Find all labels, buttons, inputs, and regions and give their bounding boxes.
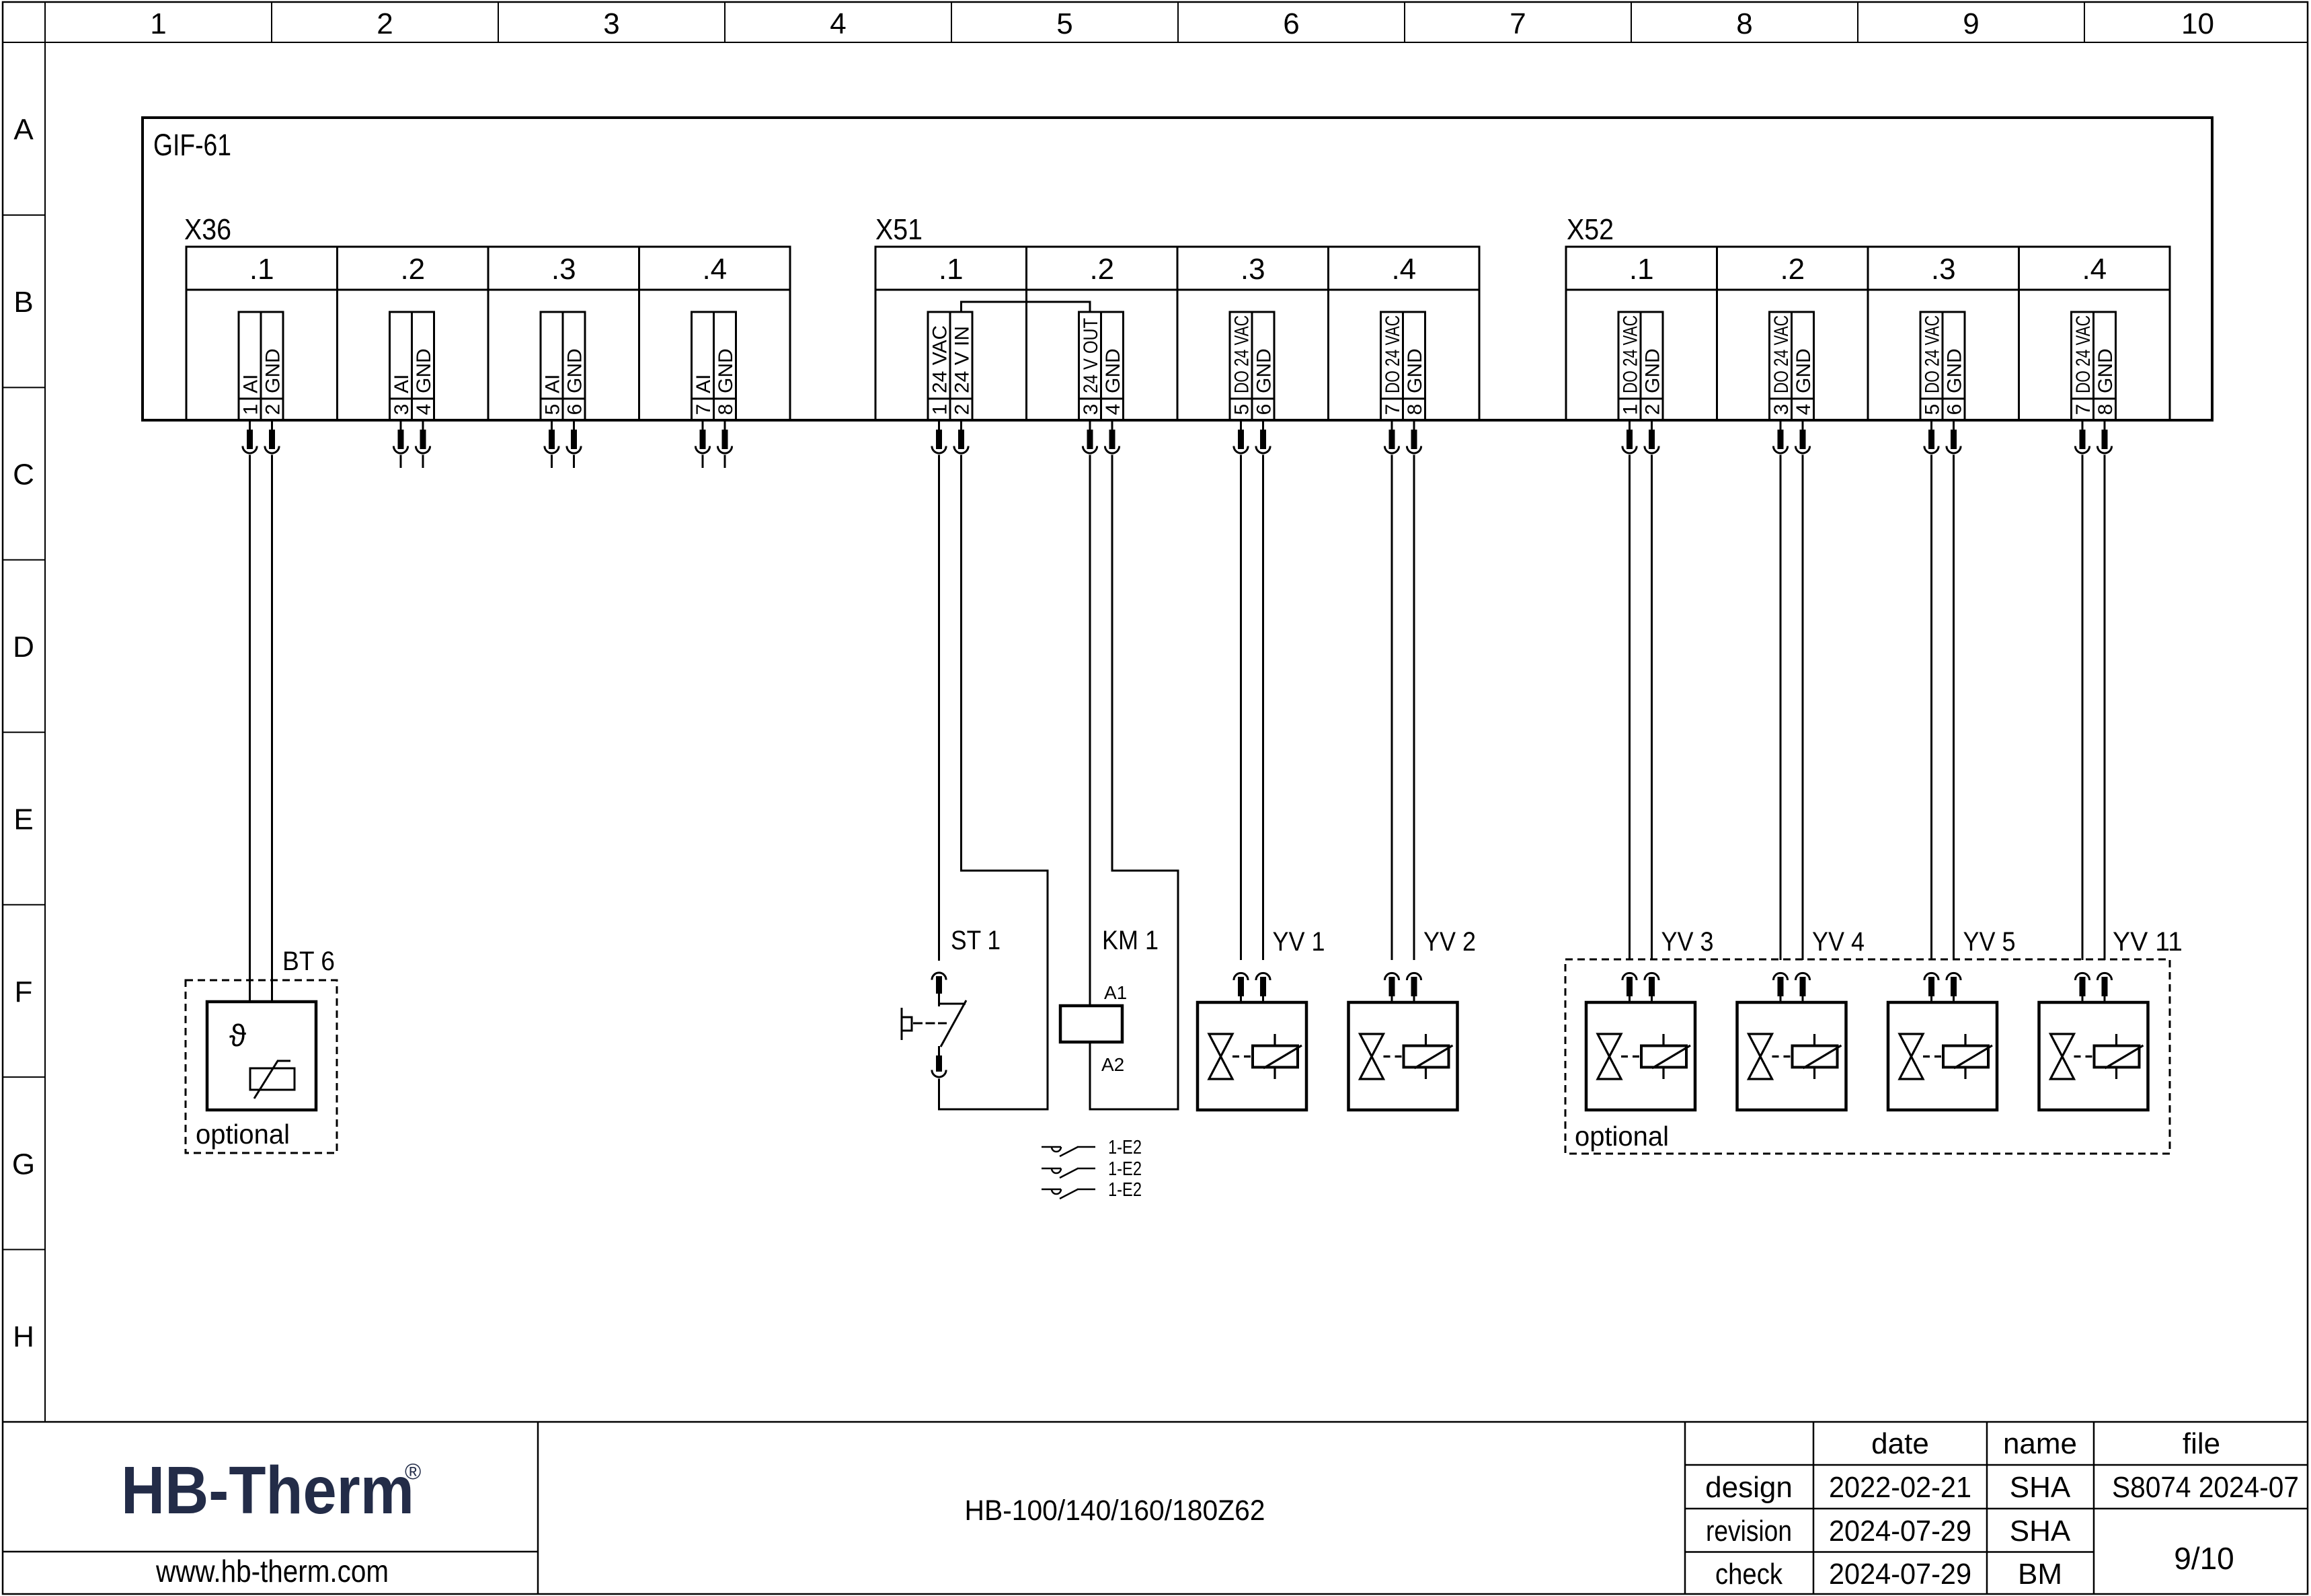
svg-text:GND: GND: [564, 348, 586, 393]
svg-text:H: H: [13, 1320, 34, 1353]
svg-text:date: date: [1871, 1427, 1929, 1460]
svg-text:2024-07-29: 2024-07-29: [1829, 1558, 1971, 1591]
svg-text:E: E: [13, 803, 33, 836]
svg-text:YV 5: YV 5: [1963, 927, 2016, 957]
svg-text:X36: X36: [184, 213, 231, 246]
svg-text:.3: .3: [1931, 253, 1956, 286]
svg-text:D: D: [13, 631, 34, 664]
svg-text:GND: GND: [715, 348, 737, 393]
svg-text:file: file: [2183, 1427, 2220, 1460]
svg-text:®: ®: [405, 1459, 421, 1484]
svg-text:2024-07-29: 2024-07-29: [1829, 1515, 1971, 1548]
svg-text:2: 2: [377, 7, 393, 40]
svg-text:YV 11: YV 11: [2113, 927, 2183, 957]
svg-text:.4: .4: [1391, 253, 1416, 286]
svg-text:7: 7: [1382, 404, 1404, 415]
svg-text:5: 5: [1056, 7, 1072, 40]
svg-text:C: C: [13, 458, 34, 491]
svg-text:SHA: SHA: [2010, 1515, 2071, 1548]
svg-text:check: check: [1715, 1558, 1783, 1591]
svg-text:GND: GND: [1102, 348, 1124, 393]
svg-text:ϑ: ϑ: [229, 1018, 246, 1053]
svg-text:HB-100/140/160/180Z62: HB-100/140/160/180Z62: [965, 1494, 1265, 1527]
svg-text:DO 24 VAC: DO 24 VAC: [1620, 315, 1642, 393]
svg-text:GND: GND: [1793, 348, 1815, 393]
svg-text:4: 4: [413, 404, 435, 415]
svg-text:4: 4: [1793, 404, 1815, 415]
svg-text:24 VAC: 24 VAC: [929, 325, 951, 393]
svg-text:7: 7: [2072, 404, 2094, 415]
svg-text:1-E2: 1-E2: [1108, 1179, 1142, 1201]
svg-text:5: 5: [1231, 404, 1253, 415]
svg-text:3: 3: [1770, 404, 1793, 415]
svg-text:1: 1: [150, 7, 166, 40]
svg-text:AI: AI: [693, 374, 715, 393]
svg-text:1-E2: 1-E2: [1108, 1158, 1142, 1180]
svg-text:DO 24 VAC: DO 24 VAC: [1922, 315, 1944, 393]
svg-text:2: 2: [1642, 404, 1664, 415]
svg-text:3: 3: [391, 404, 413, 415]
svg-text:.2: .2: [1780, 253, 1805, 286]
svg-text:.2: .2: [400, 253, 425, 286]
svg-text:.1: .1: [939, 253, 964, 286]
svg-text:1-E2: 1-E2: [1108, 1137, 1142, 1158]
svg-text:GND: GND: [413, 348, 435, 393]
svg-text:AI: AI: [542, 374, 564, 393]
svg-text:www.hb-therm.com: www.hb-therm.com: [155, 1554, 389, 1589]
svg-text:5: 5: [1922, 404, 1944, 415]
svg-text:9/10: 9/10: [2174, 1541, 2234, 1576]
svg-text:YV 1: YV 1: [1273, 927, 1325, 957]
svg-text:X51: X51: [875, 213, 923, 246]
svg-text:8: 8: [1736, 7, 1752, 40]
svg-text:24 V OUT: 24 V OUT: [1080, 318, 1102, 393]
svg-text:A: A: [13, 114, 34, 147]
svg-text:optional: optional: [1575, 1121, 1669, 1152]
svg-text:A2: A2: [1101, 1054, 1124, 1075]
svg-text:GND: GND: [1642, 348, 1664, 393]
svg-text:.2: .2: [1089, 253, 1114, 286]
svg-text:2022-02-21: 2022-02-21: [1829, 1471, 1971, 1504]
svg-text:optional: optional: [196, 1119, 290, 1150]
svg-text:3: 3: [603, 7, 619, 40]
svg-text:6: 6: [1283, 7, 1299, 40]
svg-text:DO 24 VAC: DO 24 VAC: [2072, 315, 2094, 393]
svg-text:1: 1: [240, 404, 262, 415]
svg-text:GND: GND: [262, 348, 284, 393]
svg-text:.4: .4: [2082, 253, 2107, 286]
svg-text:A1: A1: [1104, 982, 1127, 1003]
svg-text:.3: .3: [551, 253, 576, 286]
svg-text:4: 4: [1102, 404, 1124, 415]
svg-text:10: 10: [2181, 7, 2214, 40]
svg-text:name: name: [2003, 1427, 2077, 1460]
svg-text:8: 8: [715, 404, 737, 415]
svg-text:YV 2: YV 2: [1423, 927, 1476, 957]
svg-text:G: G: [12, 1148, 35, 1181]
svg-text:GND: GND: [1253, 348, 1276, 393]
svg-text:2: 2: [262, 404, 284, 415]
svg-text:design: design: [1705, 1471, 1793, 1504]
svg-text:9: 9: [1963, 7, 1979, 40]
svg-text:DO 24 VAC: DO 24 VAC: [1770, 315, 1793, 393]
svg-text:YV 4: YV 4: [1812, 927, 1865, 957]
svg-text:.3: .3: [1241, 253, 1265, 286]
svg-text:YV 3: YV 3: [1661, 927, 1714, 957]
svg-text:revision: revision: [1706, 1515, 1792, 1548]
svg-text:GND: GND: [1404, 348, 1426, 393]
svg-text:8: 8: [1404, 404, 1426, 415]
svg-text:DO 24 VAC: DO 24 VAC: [1231, 315, 1253, 393]
svg-text:24 V IN: 24 V IN: [951, 326, 974, 393]
svg-text:.4: .4: [702, 253, 727, 286]
svg-text:.1: .1: [249, 253, 274, 286]
svg-text:BT 6: BT 6: [282, 947, 335, 976]
svg-text:B: B: [13, 286, 33, 319]
svg-text:F: F: [15, 975, 33, 1008]
svg-text:S8074 2024-07: S8074 2024-07: [2112, 1471, 2299, 1504]
svg-text:1: 1: [929, 404, 951, 415]
svg-text:6: 6: [564, 404, 586, 415]
svg-text:DO 24 VAC: DO 24 VAC: [1382, 315, 1404, 393]
svg-text:1: 1: [1620, 404, 1642, 415]
svg-text:2: 2: [951, 404, 974, 415]
svg-text:8: 8: [2094, 404, 2117, 415]
svg-text:GND: GND: [2094, 348, 2117, 393]
svg-text:GND: GND: [1944, 348, 1966, 393]
svg-text:AI: AI: [240, 374, 262, 393]
svg-text:6: 6: [1253, 404, 1276, 415]
svg-text:.1: .1: [1629, 253, 1654, 286]
svg-text:3: 3: [1080, 404, 1102, 415]
svg-text:GIF-61: GIF-61: [153, 128, 231, 162]
svg-text:7: 7: [1510, 7, 1526, 40]
svg-text:6: 6: [1944, 404, 1966, 415]
svg-text:HB-Therm: HB-Therm: [121, 1453, 414, 1528]
svg-text:KM 1: KM 1: [1102, 926, 1159, 955]
svg-text:7: 7: [693, 404, 715, 415]
svg-text:4: 4: [830, 7, 846, 40]
svg-text:AI: AI: [391, 374, 413, 393]
svg-text:X52: X52: [1567, 213, 1614, 246]
svg-text:SHA: SHA: [2010, 1471, 2071, 1504]
svg-text:ST 1: ST 1: [951, 926, 1001, 955]
svg-text:5: 5: [542, 404, 564, 415]
svg-text:BM: BM: [2018, 1558, 2062, 1591]
